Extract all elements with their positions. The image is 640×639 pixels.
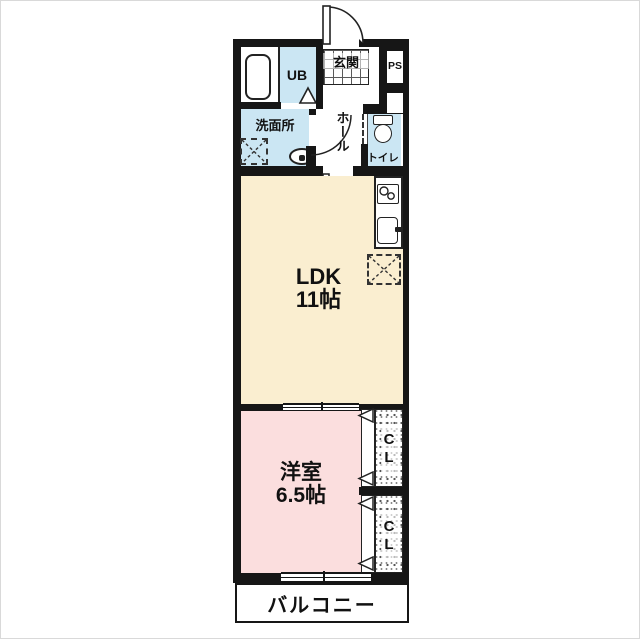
room-cl2-label: CL [381,511,397,561]
washbasin-faucet-icon [299,155,305,161]
wall [363,104,379,114]
room-ub-label: UB [278,67,316,83]
room-genkan-label: 玄関 [323,53,369,69]
entrance-door-icon [319,3,369,47]
kitchen-faucet-icon [395,227,402,232]
toilet-bowl-icon [374,124,392,143]
toilet-door-icon [362,114,368,144]
room-senmenjo-label: 洗面所 [245,116,305,132]
bathtub-icon [245,54,271,100]
room-cl1-label: CL [381,424,397,474]
wall [316,47,323,109]
room-toilet-label: トイレ [364,150,402,164]
wall [241,102,281,109]
room-ldk-label: LDK 11帖 [241,265,396,311]
service-shaft [387,93,403,113]
cl2-door-arrow-icon [357,556,375,571]
balcony-window-icon [281,572,371,583]
stove-icon [377,184,399,204]
washer-space-icon [240,138,268,165]
room-bedroom-label: 洋室 6.5帖 [241,461,361,507]
cl2-door-arrow-icon [357,496,375,511]
balcony-label: バルコニー [235,589,409,617]
ub-door-icon [298,86,318,105]
room-ps-label: PS [385,59,405,73]
room-hall-label: ホール [334,105,350,159]
wall [359,487,403,495]
cl1-door-arrow-icon [357,471,375,486]
floor-plan: UB 玄関 PS 洗面所 ホール トイレ [0,0,640,639]
cl1-door-arrow-icon [357,408,375,423]
